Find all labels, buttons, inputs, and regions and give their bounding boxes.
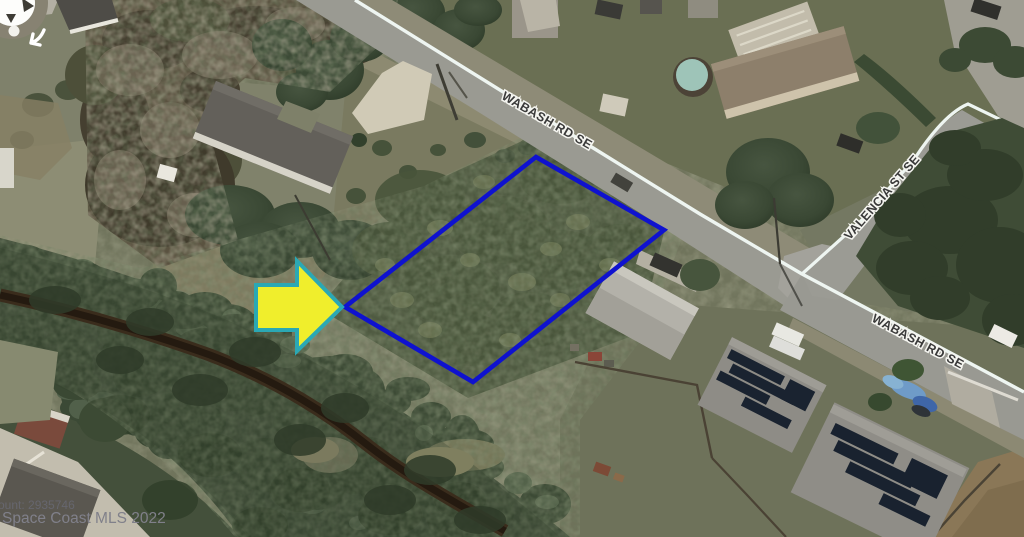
svg-text:Space Coast MLS 2022: Space Coast MLS 2022 [2, 510, 166, 527]
